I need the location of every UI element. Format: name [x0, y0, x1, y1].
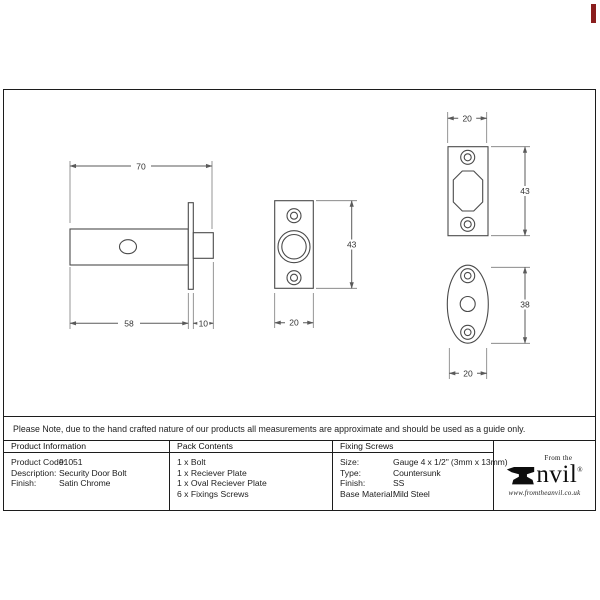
pack-contents-column: Pack Contents 1 x Bolt 1 x Reciever Plat… [169, 441, 332, 510]
receiver-height-dim: 43 [520, 186, 530, 196]
receiver-plate-drawing: 20 43 [448, 112, 533, 236]
list-item: 1 x Oval Reciever Plate [177, 478, 332, 489]
fixing-screws-column: Fixing Screws Size: Gauge 4 x 1/2" (3mm … [332, 441, 493, 510]
base-material-value: Mild Steel [393, 489, 430, 500]
logo-brand-text: nvil [536, 461, 577, 488]
technical-drawings: 70 58 10 [4, 90, 594, 417]
plate-height-dim: 43 [347, 240, 357, 250]
base-material-label: Base Material: [340, 489, 393, 500]
bolt-side-view-drawing: 70 58 10 [70, 160, 213, 329]
bolt-body-length-dim: 58 [124, 319, 134, 329]
bolt-tip-length-dim: 10 [199, 319, 209, 329]
brand-logo-cell: From the nvil® www.fromtheanvil.co.uk [493, 441, 595, 510]
note-bar: Please Note, due to the hand crafted nat… [4, 416, 595, 441]
plate-front-view-drawing: 43 20 [275, 201, 360, 328]
oval-height-dim: 38 [520, 300, 530, 310]
table-row: Finish: SS [340, 478, 493, 489]
anvil-icon [506, 464, 535, 487]
size-label: Size: [340, 457, 393, 468]
fixing-screws-header: Fixing Screws [333, 441, 493, 453]
bolt-face-plate [188, 203, 193, 290]
table-row: Type: Countersunk [340, 468, 493, 479]
registered-mark: ® [577, 466, 582, 474]
table-row: Product Code: 91051 [11, 457, 169, 468]
plate-width-dim: 20 [289, 318, 299, 328]
note-text: Please Note, due to the hand crafted nat… [13, 424, 525, 434]
product-information-column: Product Information Product Code: 91051 … [4, 441, 169, 510]
size-value: Gauge 4 x 1/2" (3mm x 13mm) [393, 457, 508, 468]
screw-finish-value: SS [393, 478, 404, 489]
anvil-logo: From the nvil® www.fromtheanvil.co.uk [506, 454, 582, 497]
oval-receiver-plate-drawing: 38 20 [447, 265, 533, 379]
table-row: Size: Gauge 4 x 1/2" (3mm x 13mm) [340, 457, 493, 468]
product-code-label: Product Code: [11, 457, 59, 468]
center-hole [460, 297, 475, 312]
table-row: Base Material: Mild Steel [340, 489, 493, 500]
oval-width-dim: 20 [463, 368, 473, 378]
product-information-header: Product Information [4, 441, 169, 453]
spec-sheet: 70 58 10 [0, 0, 600, 600]
corner-mark [591, 4, 596, 23]
list-item: 1 x Reciever Plate [177, 468, 332, 479]
spec-table: Product Information Product Code: 91051 … [4, 441, 595, 510]
list-item: 6 x Fixings Screws [177, 489, 332, 500]
bolt-total-length-dim: 70 [136, 162, 146, 172]
type-value: Countersunk [393, 468, 441, 479]
logo-url: www.fromtheanvil.co.uk [506, 489, 582, 497]
list-item: 1 x Bolt [177, 457, 332, 468]
finish-label: Finish: [11, 478, 59, 489]
finish-value: Satin Chrome [59, 478, 110, 489]
drawing-frame: 70 58 10 [3, 89, 596, 511]
table-row: Description: Security Door Bolt [11, 468, 169, 479]
receiver-width-dim: 20 [462, 113, 472, 123]
type-label: Type: [340, 468, 393, 479]
screw-finish-label: Finish: [340, 478, 393, 489]
bolt-hole [120, 240, 137, 254]
pack-contents-header: Pack Contents [170, 441, 332, 453]
table-row: Finish: Satin Chrome [11, 478, 169, 489]
latch-opening [453, 171, 482, 211]
description-label: Description: [11, 468, 59, 479]
description-value: Security Door Bolt [59, 468, 126, 479]
bolt-tip [193, 233, 213, 259]
product-code-value: 91051 [59, 457, 82, 468]
